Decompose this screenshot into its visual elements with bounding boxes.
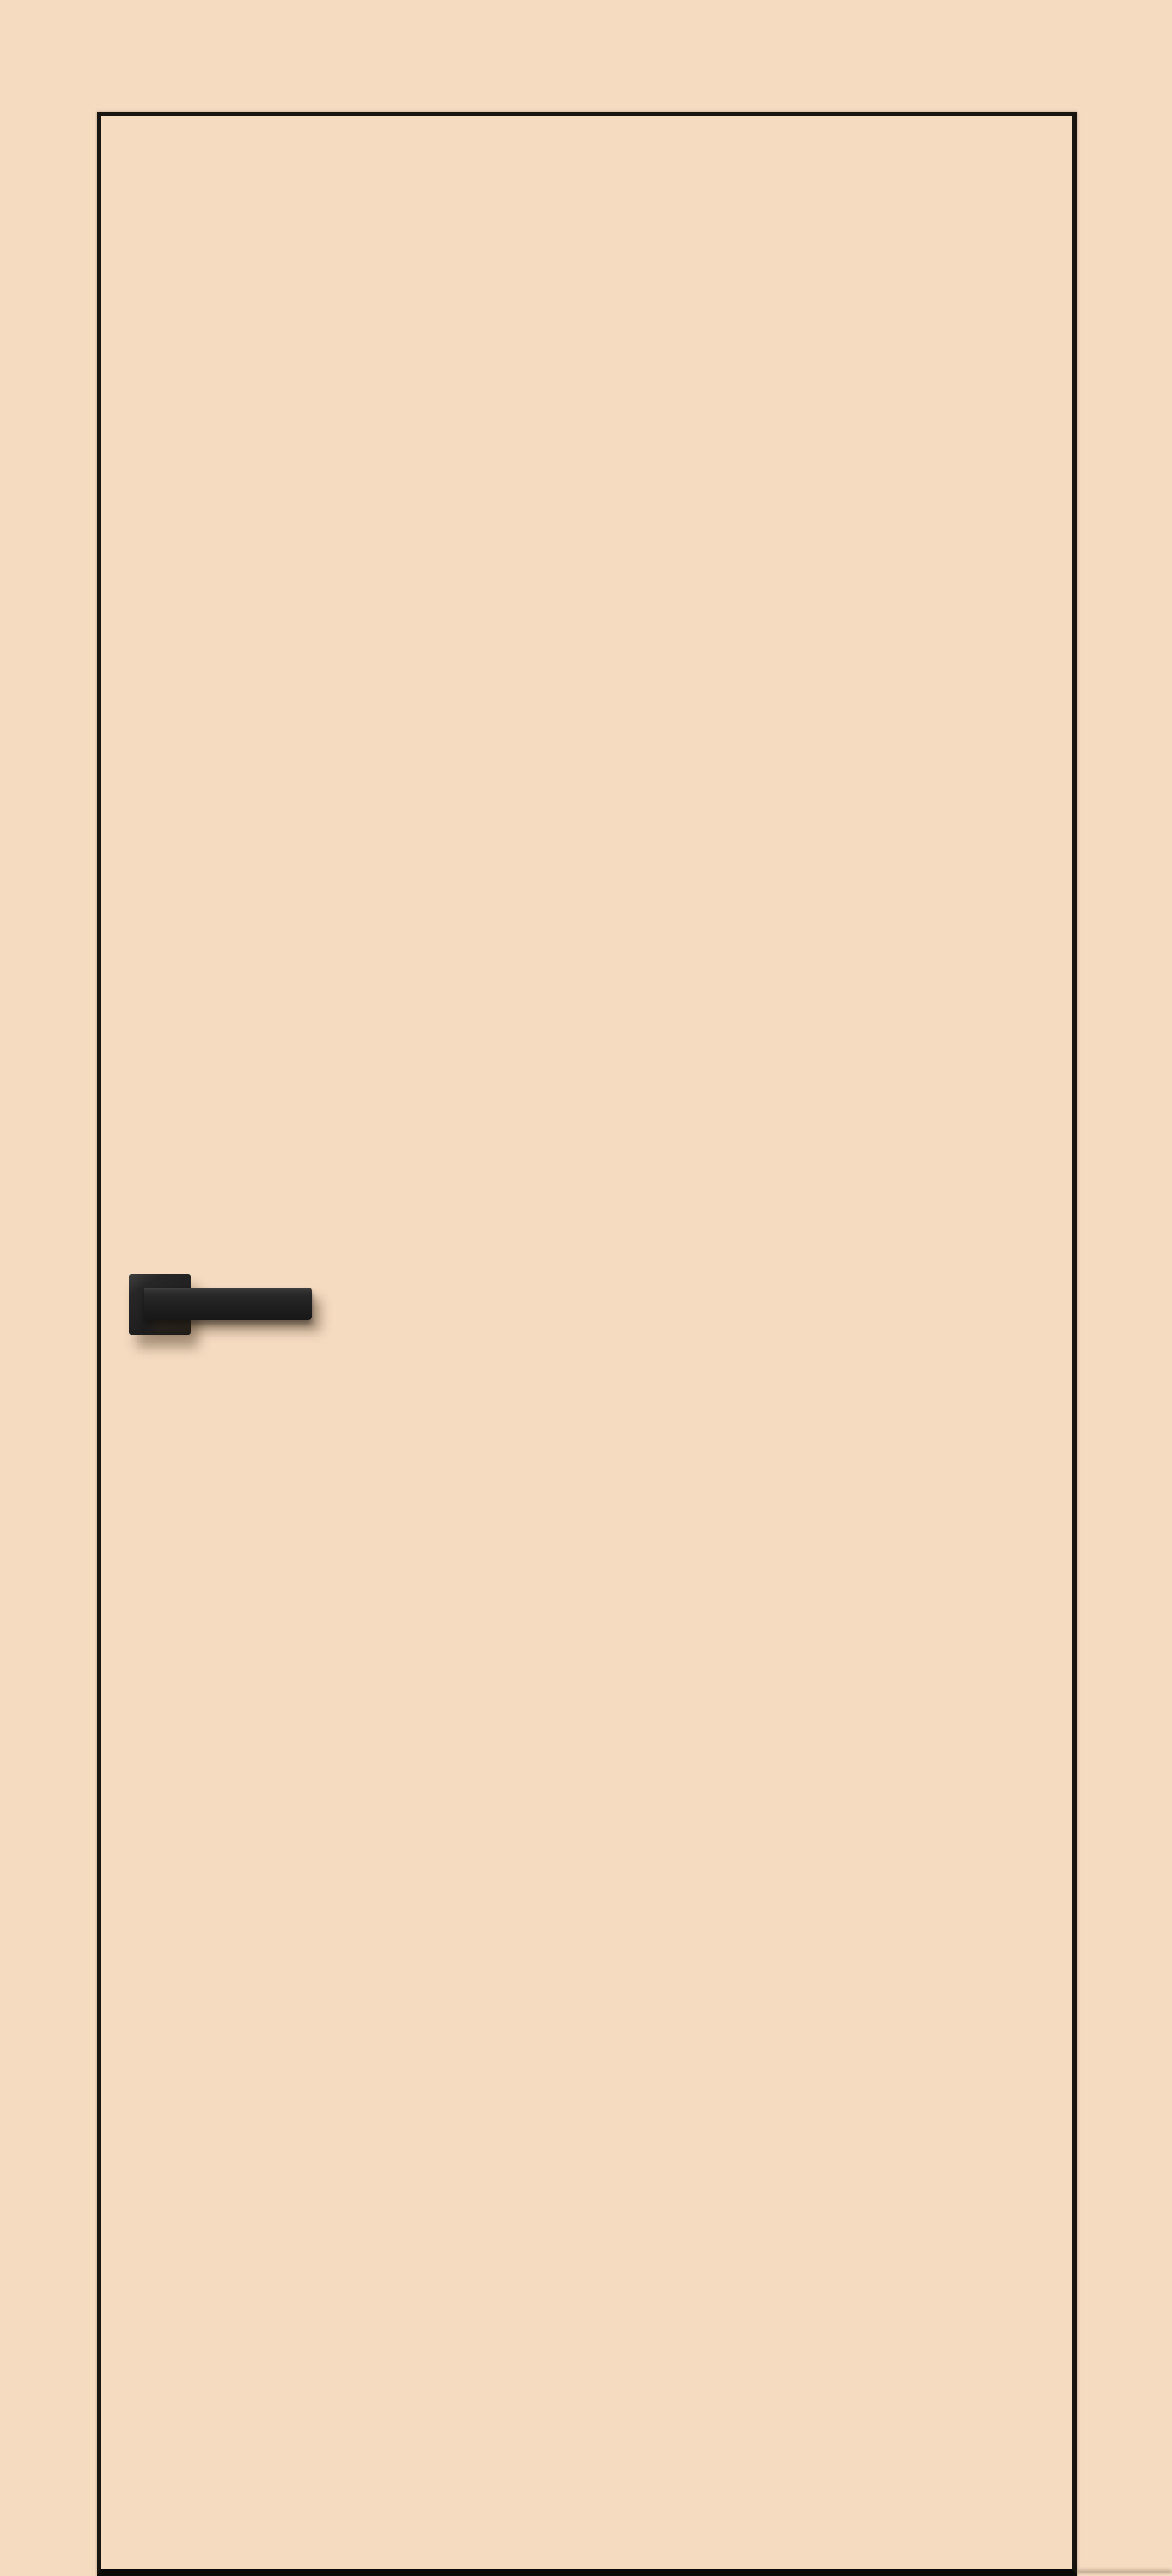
door-product-image: [0, 0, 1172, 2576]
door-panel: [97, 112, 1077, 2576]
floor-shadow: [1077, 2570, 1172, 2573]
handle-lever: [144, 1288, 312, 1320]
